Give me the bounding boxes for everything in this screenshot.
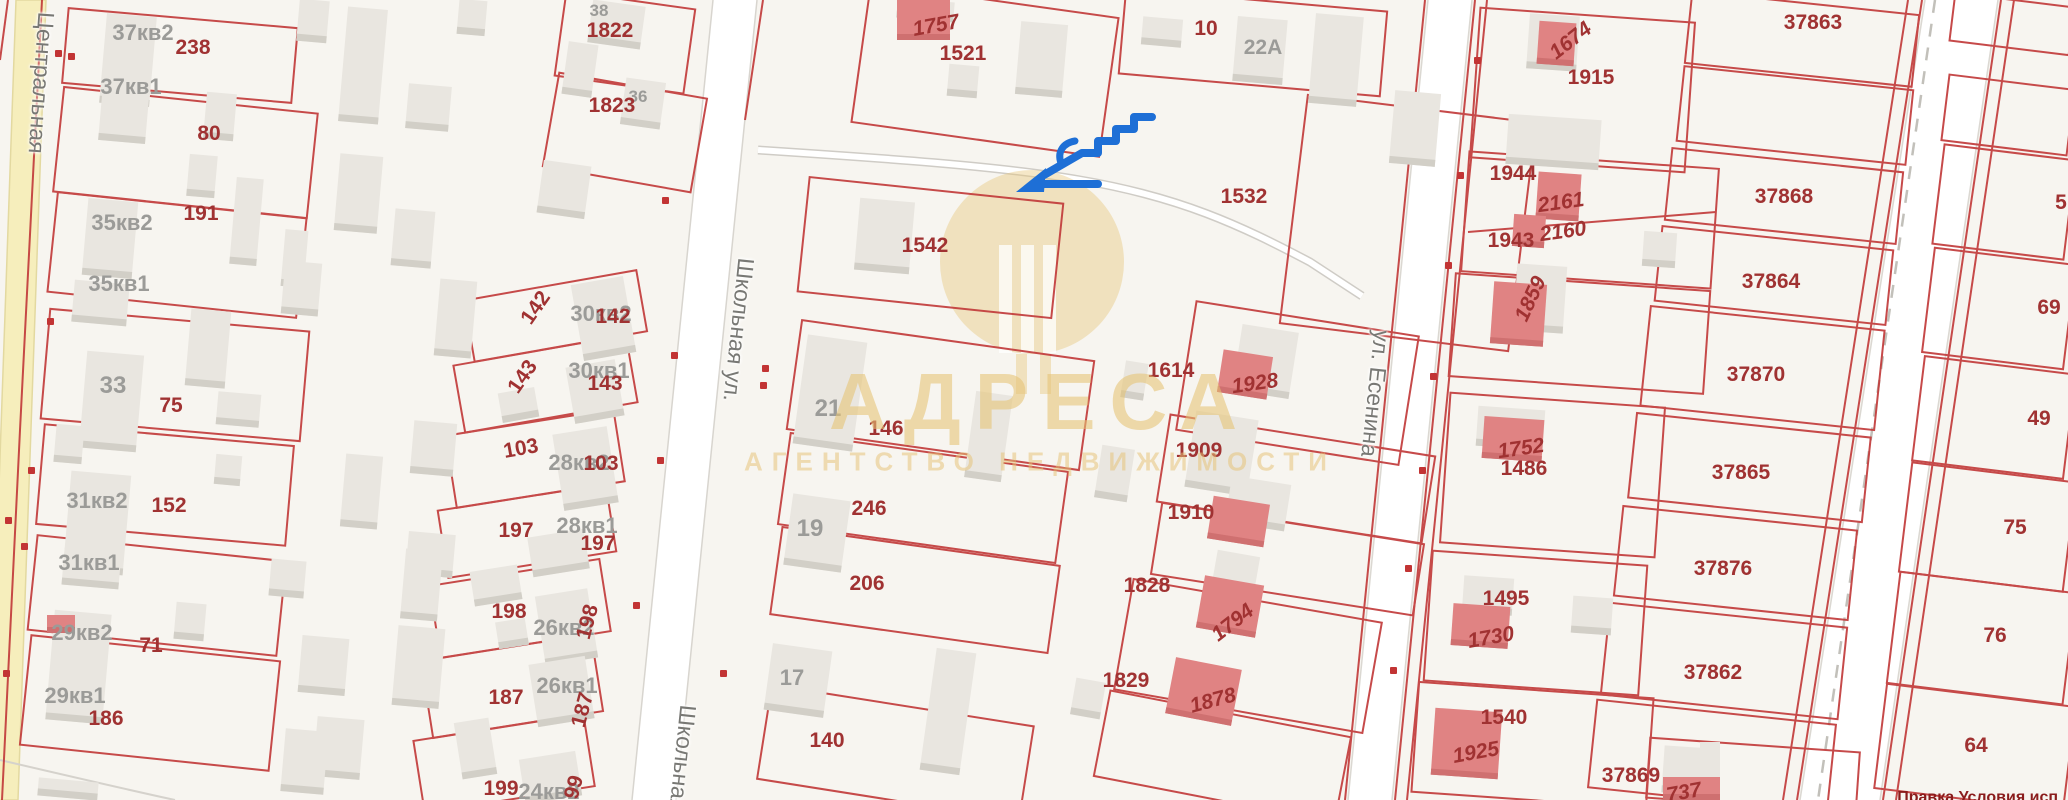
parcel-label: 37864	[1742, 270, 1800, 294]
boundary-vertex-dot	[1445, 262, 1452, 269]
parcel-label: 37кв1	[100, 74, 161, 100]
parcel-label: 1944	[1490, 162, 1537, 186]
blue-arrow-annotation	[1016, 117, 1152, 192]
parcel-label: 1828	[1124, 574, 1171, 598]
parcel-label: 19	[797, 515, 824, 543]
parcel-label: 37868	[1755, 185, 1813, 209]
parcel-label: 37870	[1727, 363, 1785, 387]
map-attribution-links[interactable]: Правка Условия исп	[1897, 789, 2058, 800]
parcel-label: 17	[780, 665, 804, 691]
parcel-label: 246	[851, 497, 886, 521]
parcel-label: 1910	[1168, 501, 1215, 525]
building	[1141, 16, 1183, 47]
parcel-label: 142	[595, 305, 630, 329]
building	[186, 154, 218, 198]
parcel-label: 69	[2037, 296, 2060, 320]
boundary-vertex-dot	[657, 457, 664, 464]
building	[185, 308, 232, 388]
parcel-label: 35кв2	[91, 210, 152, 236]
building	[79, 351, 144, 453]
parcel-label: 37876	[1694, 557, 1752, 581]
boundary-vertex-dot	[47, 318, 54, 325]
boundary-vertex-dot	[5, 517, 12, 524]
building	[392, 625, 446, 709]
building	[281, 260, 322, 316]
building	[296, 0, 330, 43]
boundary-vertex-dot	[633, 602, 640, 609]
boundary-vertex-dot	[1419, 467, 1426, 474]
parcel-label: 197	[580, 532, 615, 556]
parcel-label: 31кв2	[66, 488, 127, 514]
parcel-label: 37865	[1712, 461, 1770, 485]
building	[410, 420, 457, 477]
parcel-label: 80	[197, 122, 220, 146]
parcel-label: 37869	[1602, 764, 1660, 788]
boundary-vertex-dot	[671, 352, 678, 359]
parcel-label: 71	[139, 634, 162, 658]
street-label: Школьная ул.	[717, 257, 759, 403]
parcel-label: 1829	[1103, 669, 1150, 693]
building	[1015, 21, 1068, 98]
parcel-label: 64	[1964, 734, 1987, 758]
parcel-label: 152	[151, 494, 186, 518]
parcel-label: 1540	[1481, 706, 1528, 730]
building	[214, 454, 243, 486]
boundary-vertex-dot	[762, 365, 769, 372]
parcel-label: 199	[483, 777, 518, 800]
parcel-label: 37кв2	[112, 20, 173, 46]
road-right	[1800, 0, 1998, 800]
building	[268, 559, 306, 599]
building	[400, 549, 443, 622]
building	[920, 648, 977, 775]
parcel-label: 140	[809, 729, 844, 753]
parcel-label: 1823	[589, 94, 636, 118]
parcel-label: 103	[583, 452, 618, 476]
parcel-label: 2160	[1538, 217, 1588, 247]
road-right-centerline	[1818, 0, 1935, 800]
parcel-label: 142	[516, 287, 556, 329]
parcel-label: 29кв2	[51, 620, 112, 646]
boundary-vertex-dot	[3, 670, 10, 677]
parcel-label: 1822	[587, 19, 634, 43]
street-label: Центральная	[23, 11, 60, 155]
road-minor	[758, 150, 1362, 296]
parcel-label: 29кв1	[44, 683, 105, 709]
building	[280, 728, 328, 795]
boundary-vertex-dot	[1430, 373, 1437, 380]
building	[434, 279, 478, 359]
boundary-vertex-dot	[55, 50, 62, 57]
building	[338, 6, 388, 124]
boundary-vertex-dot	[28, 467, 35, 474]
boundary-vertex-dot	[1390, 667, 1397, 674]
boundary-vertex-dot	[1405, 565, 1412, 572]
boundary-vertex-dot	[760, 382, 767, 389]
parcel-label: 103	[502, 434, 541, 464]
street-label: Школьная ул.	[659, 704, 701, 800]
parcel-label: 1486	[1501, 457, 1548, 481]
building	[405, 83, 452, 132]
watermark-title: АДРЕСА	[829, 356, 1251, 448]
parcel-label: 76	[1983, 624, 2006, 648]
building	[1308, 13, 1364, 107]
boundary-vertex-dot	[1457, 172, 1464, 179]
boundary-vertex-dot	[21, 543, 28, 550]
building	[53, 424, 84, 464]
parcel-label: 22A	[1244, 36, 1283, 60]
parcel-label: 186	[88, 707, 123, 731]
building	[1642, 231, 1677, 268]
building	[1389, 90, 1441, 167]
street-label: ул. Есенина	[1355, 329, 1395, 459]
building	[537, 160, 592, 219]
parcel-label: 198	[491, 600, 526, 624]
watermark-subtitle: АГЕНТСТВО НЕДВИЖИМОСТИ	[744, 447, 1336, 478]
building	[98, 95, 149, 144]
parcel-label: 31кв1	[58, 550, 119, 576]
parcel-label: 75	[159, 394, 182, 418]
building	[457, 0, 488, 36]
parcel-label: 10	[1194, 17, 1217, 41]
parcel-label: 1532	[1221, 185, 1268, 209]
building	[391, 208, 436, 268]
parcel-label: 197	[498, 519, 533, 543]
building	[1070, 678, 1106, 720]
parcel-label: 143	[587, 372, 622, 396]
parcel-label: 37862	[1684, 661, 1742, 685]
boundary-vertex-dot	[720, 670, 727, 677]
building	[37, 777, 98, 800]
building	[340, 454, 383, 530]
parcel-label: 1542	[902, 234, 949, 258]
building	[561, 41, 598, 98]
parcel-label: 38	[590, 1, 609, 21]
parcel-label: 1521	[940, 42, 987, 66]
building	[173, 602, 206, 641]
parcel-label: 1943	[1488, 229, 1535, 253]
building	[947, 64, 980, 98]
building	[454, 718, 497, 780]
boundary-vertex-dot	[1474, 57, 1481, 64]
building	[229, 177, 263, 266]
parcel-label: 33	[100, 372, 127, 400]
parcel-label: 1915	[1568, 66, 1615, 90]
parcel-label: 1495	[1483, 587, 1530, 611]
boundary-vertex-dot	[662, 197, 669, 204]
building-highlighted	[1207, 496, 1270, 547]
parcel-label: 238	[175, 36, 210, 60]
building	[216, 391, 262, 428]
boundary-vertex-dot	[68, 53, 75, 60]
building	[298, 635, 350, 696]
parcel-label: 37863	[1784, 11, 1842, 35]
parcel-label: 206	[849, 572, 884, 596]
parcel-label: 187	[488, 686, 523, 710]
building	[1571, 596, 1613, 636]
parcel-label: 49	[2027, 407, 2050, 431]
map-canvas[interactable]: 37кв223837кв18035кв219135кв1337531кв2152…	[0, 0, 2068, 800]
parcel-label: 35кв1	[88, 271, 149, 297]
building	[334, 153, 384, 233]
parcel-label: 75	[2003, 516, 2026, 540]
parcel-label: 5	[2055, 191, 2067, 215]
parcel-label: 191	[183, 202, 218, 226]
